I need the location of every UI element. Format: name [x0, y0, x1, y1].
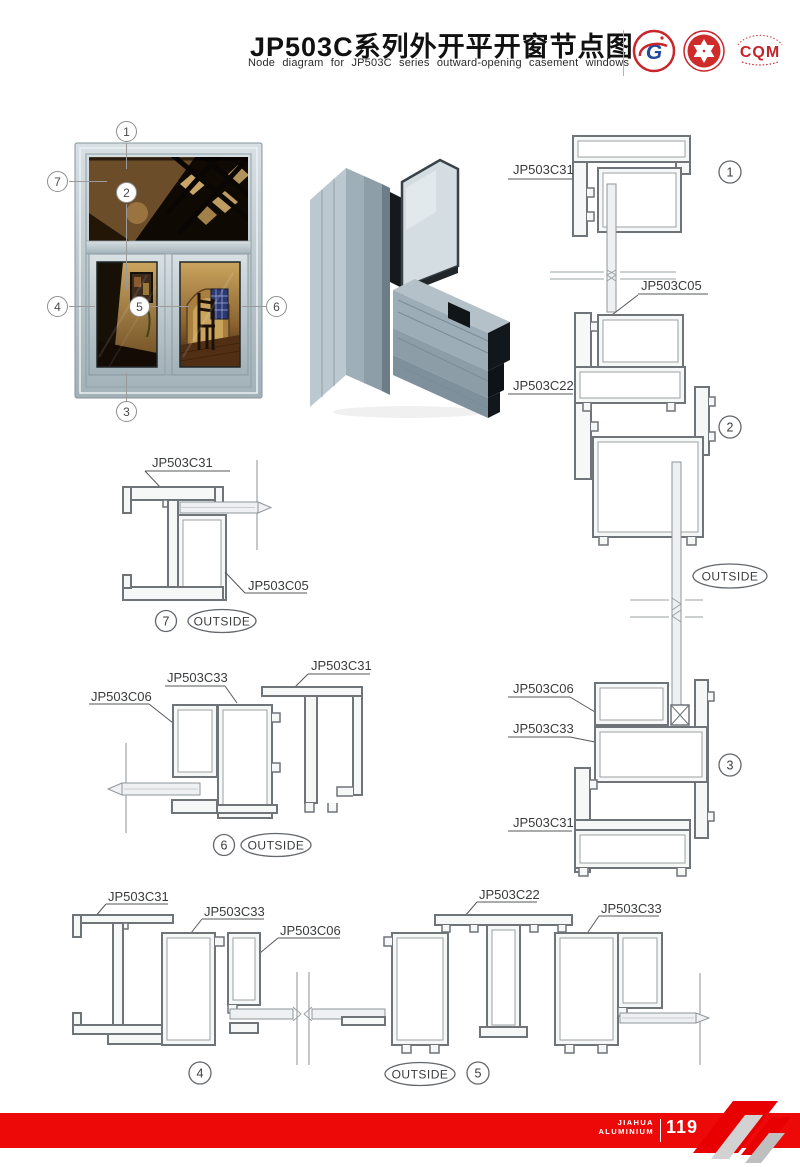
part-label: JP503C33	[601, 901, 662, 916]
part-label: JP503C22	[513, 378, 574, 393]
certification-logos: G CQM	[632, 29, 788, 73]
section-number-2: 2	[727, 421, 734, 435]
callout-line-1	[126, 143, 127, 169]
part-label: JP503C06	[280, 923, 341, 938]
part-label: JP503C33	[167, 670, 228, 685]
callout-6: 6	[266, 296, 287, 317]
callout-7: 7	[47, 171, 68, 192]
outside-badge: OUTSIDE	[392, 1068, 449, 1082]
callout-line-3	[126, 373, 127, 401]
profile-3d-render	[298, 140, 493, 420]
footer-brand-line2: ALUMINIUM	[548, 1127, 654, 1136]
callout-line-6	[242, 306, 266, 307]
callout-3: 3	[116, 401, 137, 422]
outside-badge: OUTSIDE	[702, 570, 759, 584]
callout-line-7	[69, 181, 107, 182]
page-subtitle: Node diagram for JP503C series outward-o…	[248, 57, 592, 69]
glazing-block	[671, 705, 689, 725]
glass-arrow	[620, 1013, 709, 1023]
cqm-text: CQM	[740, 44, 780, 61]
detail-diagrams-4-5: JP503C31 JP503C33 JP503C06 4 JP503C22	[50, 885, 760, 1085]
transom-glass	[89, 149, 255, 241]
part-label: JP503C05	[641, 278, 702, 293]
part-label: JP503C31	[311, 658, 372, 673]
callout-line-5	[151, 306, 189, 307]
section-number-7: 7	[163, 615, 170, 629]
section-number-5: 5	[475, 1067, 482, 1081]
part-label: JP503C33	[204, 904, 265, 919]
section-number-6: 6	[221, 839, 228, 853]
glass-arrow	[180, 502, 271, 513]
footer-decor-icon	[683, 1093, 798, 1165]
outside-badge: OUTSIDE	[248, 839, 305, 853]
section-number-4: 4	[197, 1067, 204, 1081]
catalog-page: JP503C系列外开平开窗节点图 Node diagram for JP503C…	[0, 0, 800, 1167]
callout-5: 5	[129, 296, 150, 317]
gb-emblem-icon: G	[632, 29, 676, 73]
right-casement-glass	[180, 262, 240, 367]
header-divider	[623, 30, 624, 76]
section-diagrams-right: JP503C31 1 JP503C05 JP503C22 2 OUTSIDE	[495, 122, 795, 882]
part-label: JP503C06	[513, 681, 574, 696]
detail-diagram-6: JP503C31 JP503C33 JP503C06 6 OUTSIDE	[80, 655, 390, 860]
section-number-1: 1	[727, 166, 734, 180]
callout-line-4	[69, 306, 95, 307]
section-number-3: 3	[727, 759, 734, 773]
part-label: JP503C06	[91, 689, 152, 704]
part-label: JP503C05	[248, 578, 309, 593]
callout-line-2	[126, 204, 127, 290]
callout-2: 2	[116, 182, 137, 203]
detail-diagram-7: JP503C31 JP503C05 7 OUTSIDE	[105, 450, 365, 635]
footer-separator	[660, 1119, 661, 1142]
quality-seal-icon	[682, 29, 726, 73]
callout-4: 4	[47, 296, 68, 317]
part-label: JP503C31	[152, 455, 213, 470]
left-casement-glass	[97, 262, 157, 367]
footer-brand-line1: JIAHUA	[548, 1118, 654, 1127]
footer-brand: JIAHUA ALUMINIUM	[548, 1118, 654, 1137]
part-label: JP503C22	[479, 887, 540, 902]
outside-badge: OUTSIDE	[194, 615, 251, 629]
cqm-logo: CQM	[732, 29, 788, 73]
glass-arrow	[108, 783, 200, 795]
part-label: JP503C33	[513, 721, 574, 736]
callout-1: 1	[116, 121, 137, 142]
part-label: JP503C31	[513, 815, 574, 830]
part-label: JP503C31	[513, 162, 574, 177]
part-label: JP503C31	[108, 889, 169, 904]
